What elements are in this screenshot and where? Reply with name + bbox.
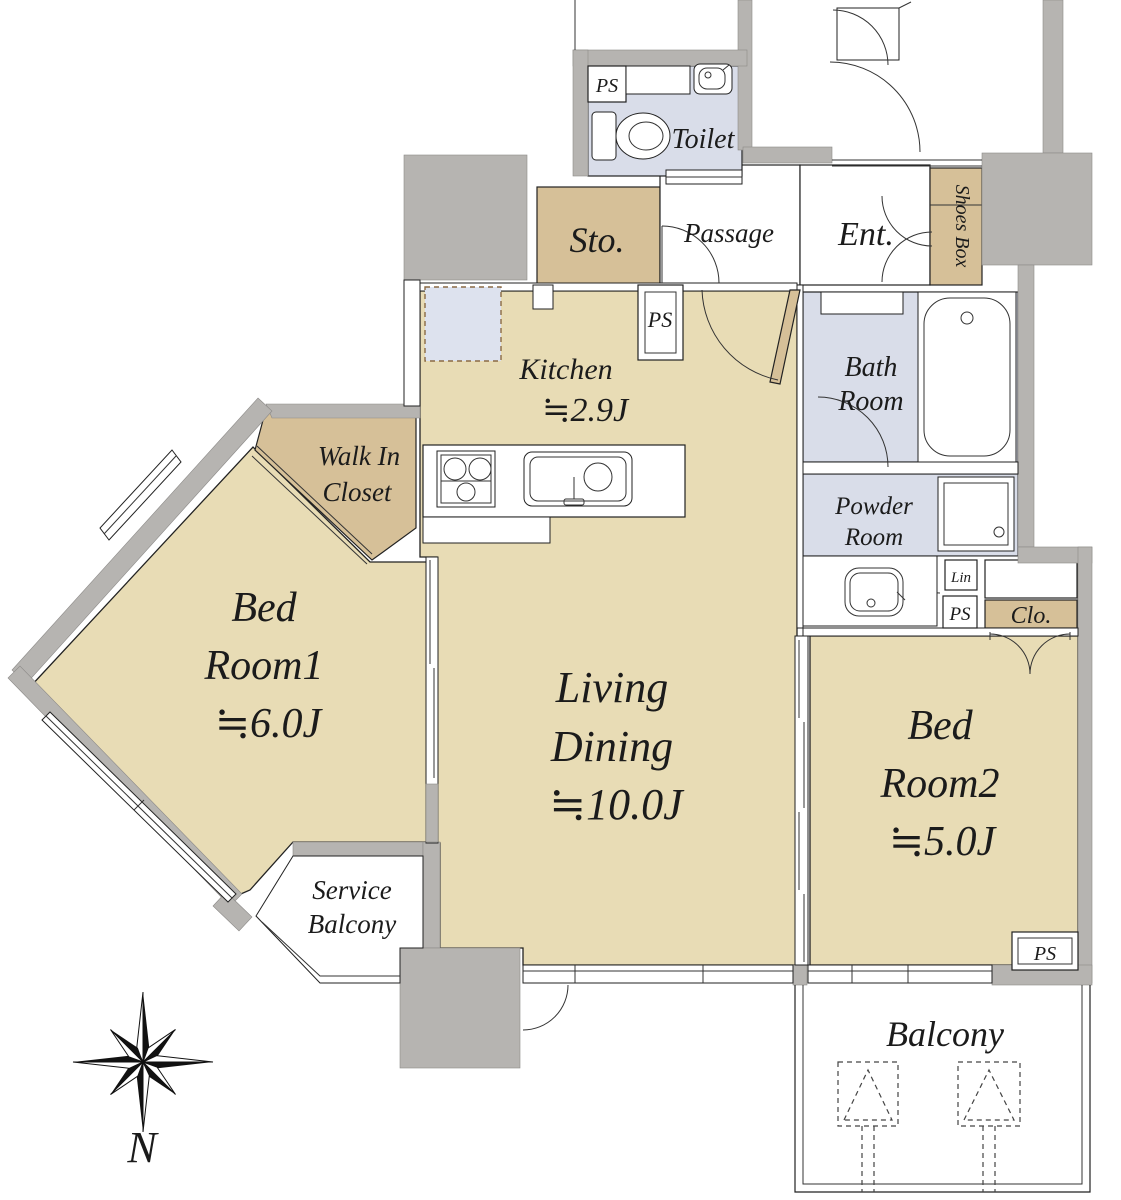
label-wic-2: Closet bbox=[322, 477, 393, 507]
label-bedroom2-1: Bed bbox=[907, 703, 973, 749]
bathtub bbox=[918, 292, 1016, 462]
label-living-area: ≒10.0J bbox=[549, 780, 685, 829]
toilet-fixture bbox=[592, 112, 670, 160]
label-powder-1: Powder bbox=[834, 493, 913, 520]
label-service-balcony-2: Balcony bbox=[308, 909, 396, 939]
label-living-1: Living bbox=[555, 663, 668, 712]
washer-space bbox=[938, 477, 1014, 551]
vanity-basin bbox=[803, 556, 937, 626]
label-closet: Clo. bbox=[1011, 603, 1052, 629]
label-bath-1: Bath bbox=[845, 352, 898, 383]
ac-unit-1 bbox=[838, 1062, 898, 1192]
compass-north-label: N bbox=[126, 1123, 159, 1172]
label-passage: Passage bbox=[683, 218, 774, 248]
label-balcony: Balcony bbox=[886, 1014, 1004, 1054]
ac-unit-2 bbox=[958, 1062, 1020, 1192]
label-lin: Lin bbox=[950, 570, 971, 586]
label-kitchen-area: ≒2.9J bbox=[542, 392, 630, 429]
label-service-balcony-1: Service bbox=[312, 875, 391, 905]
label-bath-2: Room bbox=[837, 386, 903, 417]
label-bedroom2-area: ≒5.0J bbox=[889, 819, 998, 865]
label-bedroom1-area: ≒6.0J bbox=[215, 701, 324, 747]
label-bedroom2-2: Room2 bbox=[880, 761, 1000, 807]
closet-cabinet bbox=[985, 560, 1077, 598]
compass-rose bbox=[73, 992, 213, 1132]
floor-plan: Toilet PS Passage Ent. Sto. Shoes Box Ki… bbox=[0, 0, 1121, 1200]
label-bedroom1-1: Bed bbox=[231, 585, 297, 631]
label-shoes-box: Shoes Box bbox=[951, 185, 973, 268]
label-storage: Sto. bbox=[569, 220, 624, 260]
fridge-space bbox=[425, 287, 501, 361]
floor-plan-page: Toilet PS Passage Ent. Sto. Shoes Box Ki… bbox=[0, 0, 1121, 1200]
label-wic-1: Walk In bbox=[318, 441, 400, 471]
label-living-2: Dining bbox=[550, 722, 673, 771]
label-ps-vanity: PS bbox=[948, 604, 971, 625]
label-ps-toilet: PS bbox=[595, 75, 618, 97]
label-kitchen: Kitchen bbox=[518, 353, 612, 386]
label-powder-2: Room bbox=[844, 524, 903, 551]
label-bedroom1-2: Room1 bbox=[204, 643, 324, 689]
label-entrance: Ent. bbox=[837, 216, 894, 253]
label-toilet: Toilet bbox=[672, 124, 736, 155]
label-ps-kitchen: PS bbox=[647, 307, 672, 332]
